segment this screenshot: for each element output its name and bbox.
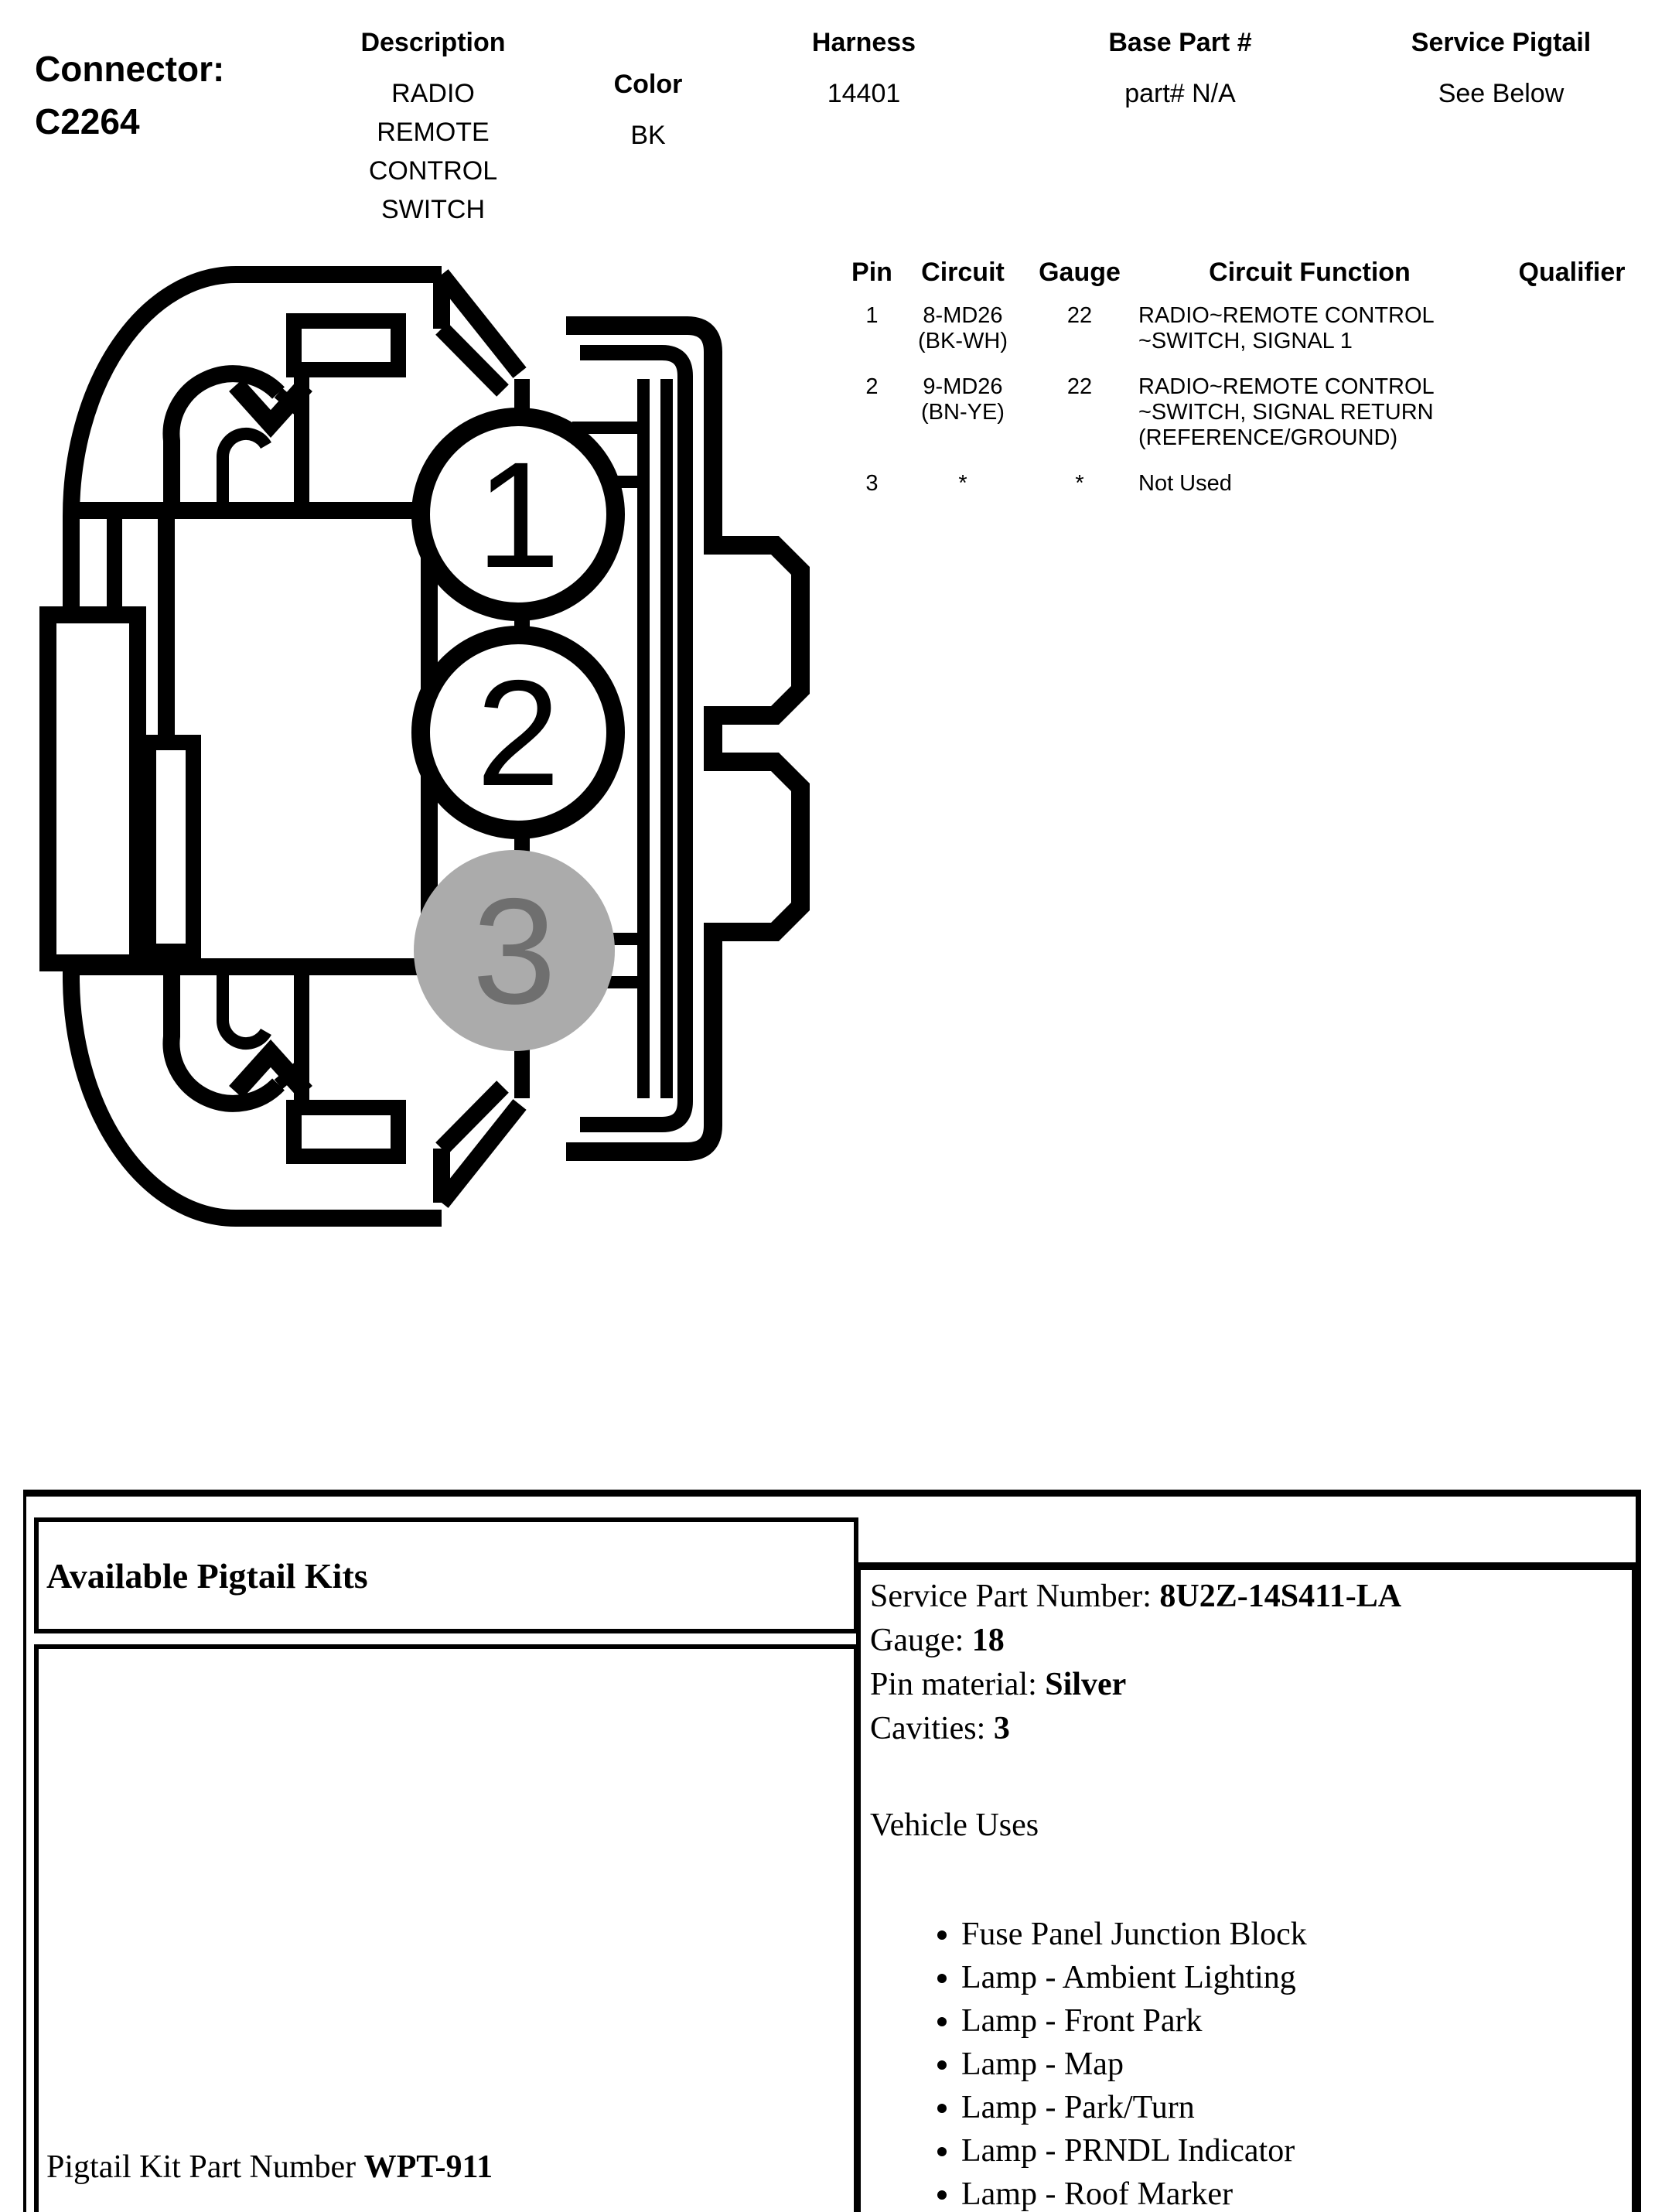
vehicle-uses-title: Vehicle Uses: [870, 1804, 1632, 1848]
gauge-cell: 22: [1029, 374, 1131, 471]
vehicle-uses-list: Fuse Panel Junction Block Lamp - Ambient…: [870, 1913, 1632, 2212]
pin-material-label: Pin material:: [870, 1667, 1045, 1702]
gauge-cell: 22: [1029, 303, 1131, 374]
qualifier-cell: [1489, 303, 1655, 374]
connector-spec-page: Connector: C2264 Description RADIO REMOT…: [0, 0, 1672, 2212]
vehicle-use-item: Fuse Panel Junction Block: [961, 1913, 1632, 1956]
pin-table-header-circuit: Circuit: [897, 258, 1029, 303]
available-pigtail-kits-box: Available Pigtail Kits: [34, 1517, 858, 1633]
col-header-base-part: Base Part #: [1087, 28, 1273, 58]
col-value-service-pigtail: See Below: [1397, 74, 1605, 113]
circuit-cell: *: [897, 471, 1029, 517]
pigtail-kit-part-label: Pigtail Kit Part Number: [46, 2149, 364, 2185]
connector-inner-body: [166, 510, 429, 967]
circuit-cell: 9-MD26 (BN-YE): [897, 374, 1029, 471]
connector-keyway: [148, 742, 193, 951]
col-value-color: BK: [602, 116, 694, 155]
page-title: Connector: C2264: [35, 43, 298, 148]
vehicle-use-item: Lamp - Front Park: [961, 1999, 1632, 2043]
service-pigtail-details-box: Service Part Number: 8U2Z-14S411-LA Gaug…: [856, 1562, 1636, 2212]
col-header-color: Color: [602, 70, 694, 100]
function-cell: RADIO~REMOTE CONTROL ~SWITCH, SIGNAL RET…: [1131, 374, 1489, 471]
pigtail-kit-part-number: WPT-911: [364, 2149, 493, 2185]
vehicle-use-item: Lamp - PRNDL Indicator: [961, 2129, 1632, 2173]
connector-side-lug: [48, 615, 138, 963]
cavities-line: Cavities: 3: [870, 1707, 1632, 1751]
pin-table-header-gauge: Gauge: [1029, 258, 1131, 303]
service-part-number-label: Service Part Number:: [870, 1579, 1159, 1614]
qualifier-cell: [1489, 471, 1655, 517]
qualifier-cell: [1489, 374, 1655, 471]
col-value-description: RADIO REMOTE CONTROL SWITCH: [333, 74, 534, 229]
connector-diagram: 1 2 3: [39, 255, 858, 1237]
pin-table-header-function: Circuit Function: [1131, 258, 1489, 303]
pin-1-number: 1: [476, 431, 560, 599]
pigtail-kit-part-line: Pigtail Kit Part Number WPT-911: [46, 2149, 493, 2186]
connector-label: Connector:: [35, 43, 298, 95]
cavities-label: Cavities:: [870, 1711, 994, 1746]
connector-id: C2264: [35, 95, 298, 148]
gauge-line: Gauge: 18: [870, 1619, 1632, 1663]
gauge-value: 18: [972, 1623, 1005, 1658]
pin-3-number: 3: [473, 867, 556, 1036]
col-header-harness: Harness: [779, 28, 949, 58]
vehicle-use-item: Lamp - Map: [961, 2043, 1632, 2086]
circuit-cell: 8-MD26 (BK-WH): [897, 303, 1029, 374]
function-cell: RADIO~REMOTE CONTROL ~SWITCH, SIGNAL 1: [1131, 303, 1489, 374]
pin-table-header-qualifier: Qualifier: [1489, 258, 1655, 303]
gauge-cell: *: [1029, 471, 1131, 517]
col-value-harness: 14401: [779, 74, 949, 113]
col-header-service-pigtail: Service Pigtail: [1397, 28, 1605, 58]
col-header-description: Description: [317, 28, 549, 58]
cavities-value: 3: [994, 1711, 1010, 1746]
service-part-number-value: 8U2Z-14S411-LA: [1159, 1579, 1401, 1614]
col-value-base-part: part# N/A: [1087, 74, 1273, 113]
gauge-label: Gauge:: [870, 1623, 972, 1658]
function-cell: Not Used: [1131, 471, 1489, 517]
service-part-number-line: Service Part Number: 8U2Z-14S411-LA: [870, 1575, 1632, 1619]
vehicle-use-item: Lamp - Roof Marker: [961, 2173, 1632, 2212]
available-pigtail-kits-title: Available Pigtail Kits: [46, 1555, 368, 1596]
vehicle-use-item: Lamp - Ambient Lighting: [961, 1956, 1632, 1999]
pin-material-value: Silver: [1045, 1667, 1126, 1702]
pin-2-number: 2: [476, 649, 560, 818]
vehicle-use-item: Lamp - Park/Turn: [961, 2086, 1632, 2129]
pigtail-kit-box: Pigtail Kit Part Number WPT-911: [34, 1644, 858, 2212]
pin-table: Pin Circuit Gauge Circuit Function Quali…: [847, 258, 1659, 517]
pin-material-line: Pin material: Silver: [870, 1663, 1632, 1707]
